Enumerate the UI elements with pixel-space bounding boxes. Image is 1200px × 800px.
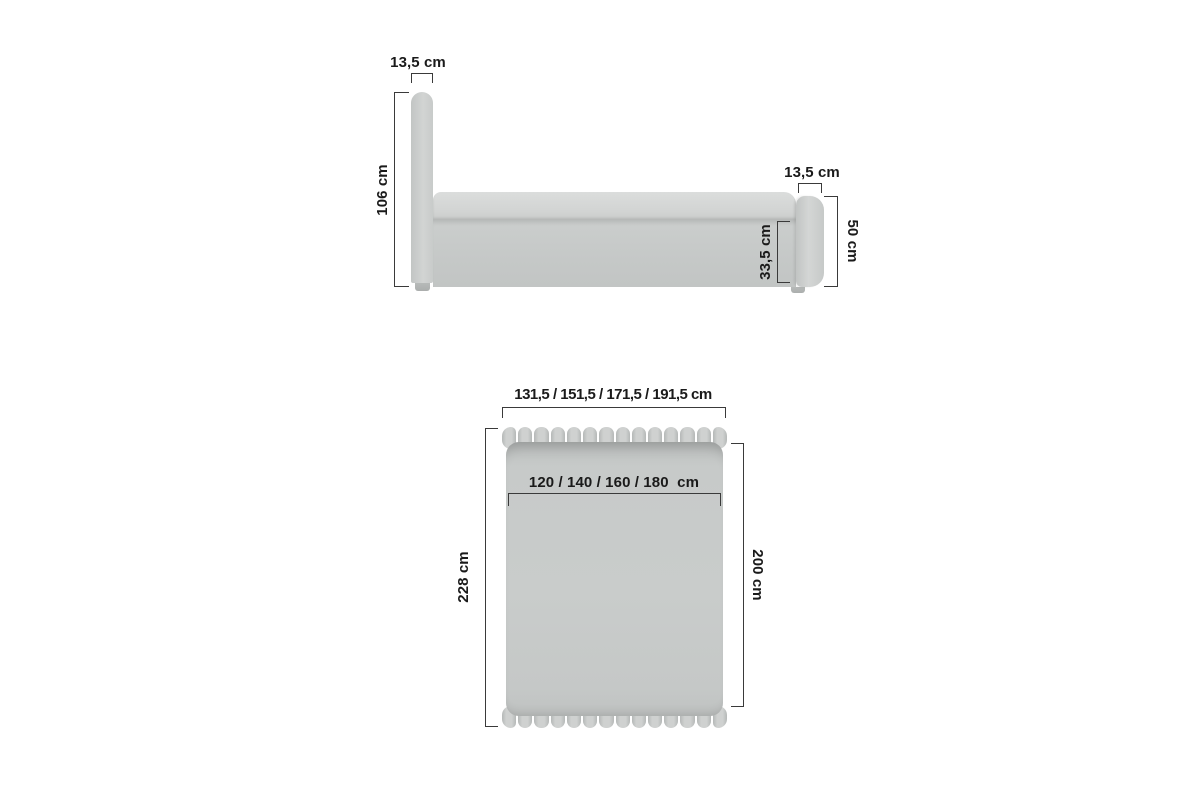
frame-height-label: 33,5 cm [756,212,776,292]
mattress-side-shape [433,192,796,220]
frame-height-dimension-line [777,221,790,283]
mattress-width-label: 120 / 140 / 160 / 180 cm [464,473,764,493]
bed-top-view: 131,5 / 151,5 / 171,5 / 191,5 cm 120 / 1… [0,0,1200,800]
total-width-label: 131,5 / 151,5 / 171,5 / 191,5 cm [453,385,773,405]
bed-frame-side-shape [433,220,796,287]
mattress-width-bracket [508,493,721,506]
headboard-side-shape [411,92,433,283]
mattress-length-label: 200 cm [747,535,767,615]
bed-dimensions-diagram: 13,5 cm 106 cm 13,5 cm 50 cm 33,5 cm 131… [0,0,1200,800]
total-width-bracket [502,407,726,418]
total-length-label: 228 cm [454,537,474,617]
footboard-side-shape [796,196,824,287]
